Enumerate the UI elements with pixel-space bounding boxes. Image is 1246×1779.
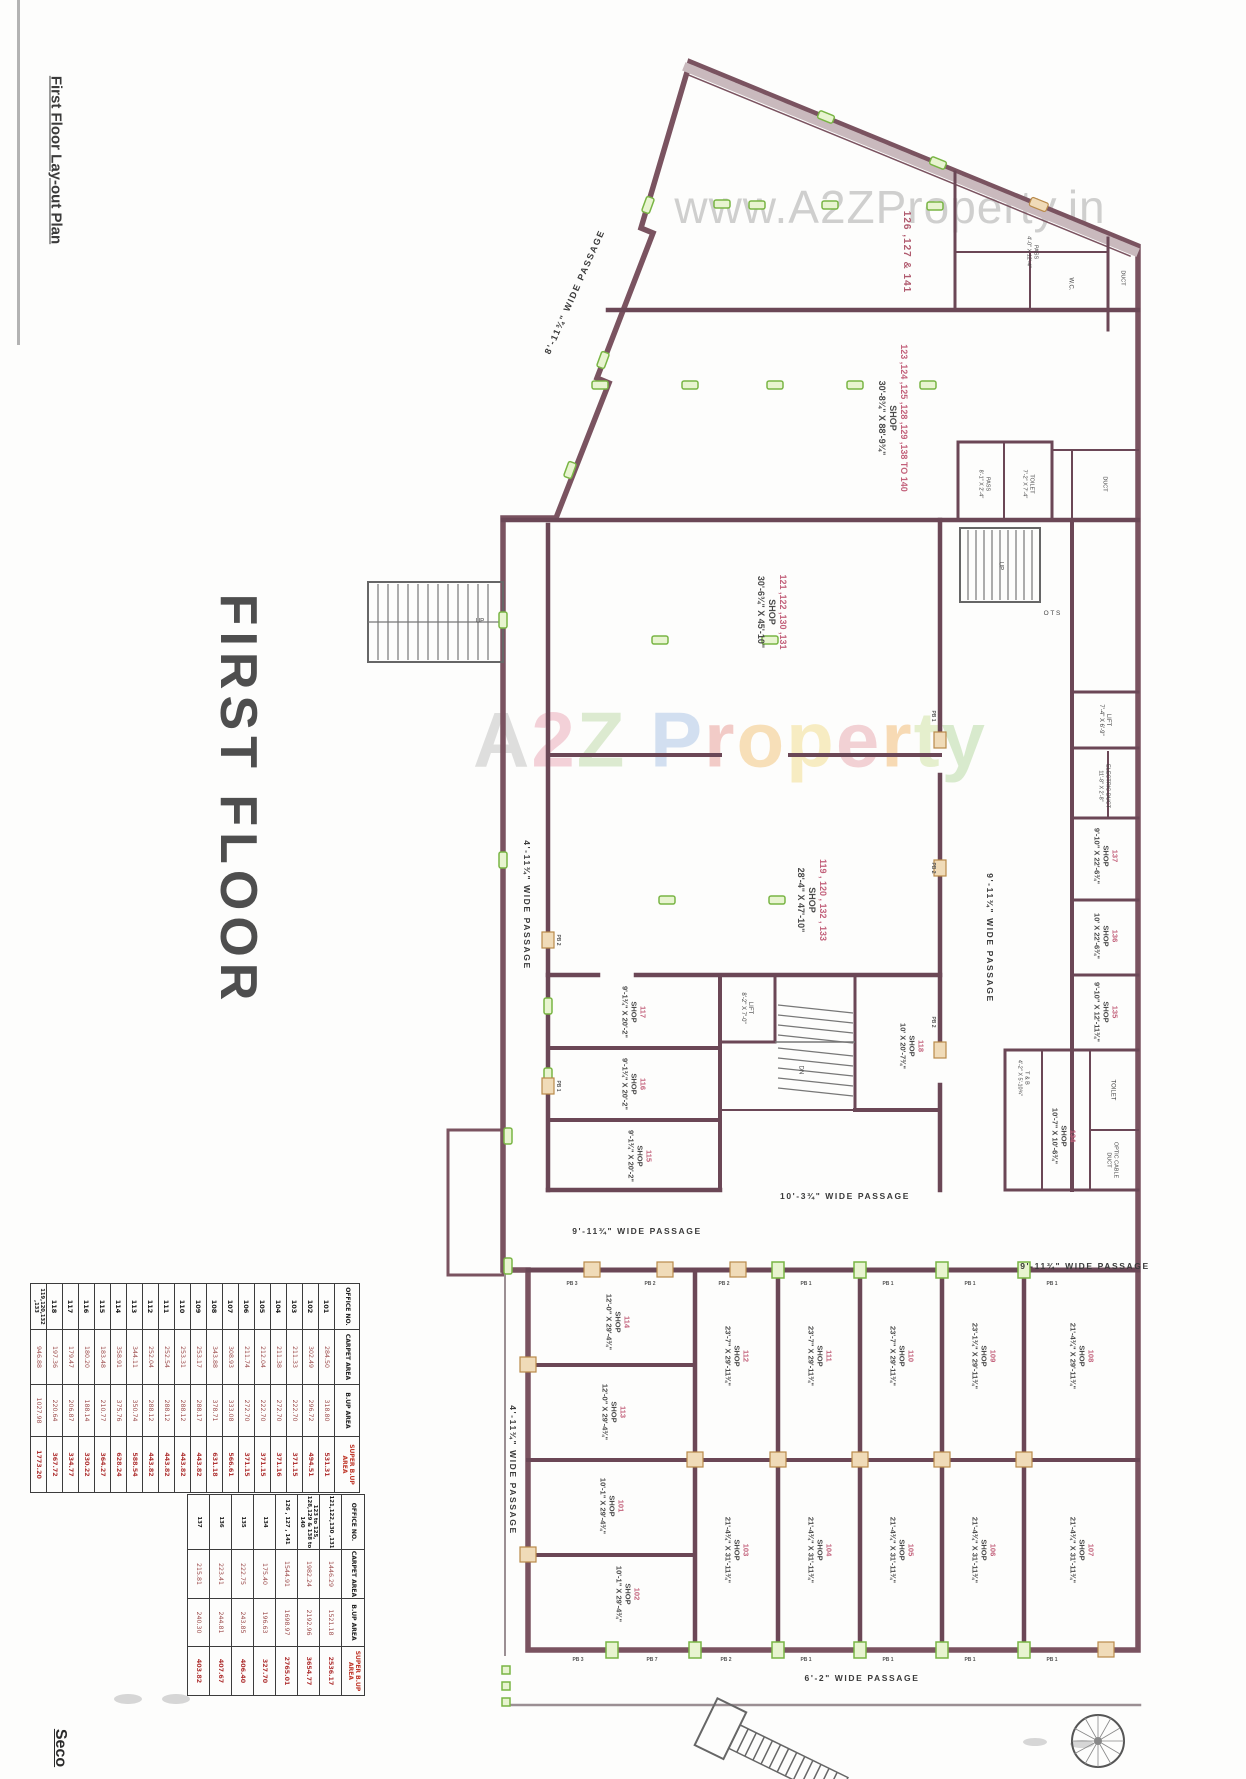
- table-cell: 371.15: [287, 1437, 303, 1493]
- passage-left-upper-label: 4'-11¾" WIDE PASSAGE: [522, 840, 532, 970]
- table-cell: 288.17: [191, 1385, 207, 1437]
- table-cell: 371.16: [271, 1437, 287, 1493]
- table-row: 115183.48210.77364.27: [95, 1284, 111, 1493]
- table-cell: 253.17: [191, 1330, 207, 1385]
- table-row: 101284.50318.80531.31: [319, 1284, 335, 1493]
- table-cell: 134: [254, 1495, 276, 1550]
- table-cell: 1544.91: [276, 1550, 298, 1599]
- passage-left-lower-label: 4'-11¾" WIDE PASSAGE: [508, 1405, 518, 1535]
- table-cell: 367.72: [47, 1437, 63, 1493]
- optic-cable-duct-label: OPTIC CABLE DUCT: [1105, 1142, 1118, 1178]
- room-106: 106 SHOP 21'-4¾" X 31'-11¾": [971, 1517, 998, 1583]
- table-cell: 175.40: [254, 1550, 276, 1599]
- table-cell: 344.11: [127, 1330, 143, 1385]
- toilet-mid-label: TOILET 7'-2" X 7'-4": [1021, 470, 1034, 499]
- table-row: 123 to 125, 128,129 & 138 to 1401982.242…: [298, 1495, 320, 1696]
- sheet-title: First Floor Lay-out Plan: [48, 76, 65, 244]
- floor-title: FIRST FLOOR: [208, 594, 268, 1007]
- table-cell: 211.38: [271, 1330, 287, 1385]
- table-cell: 102: [303, 1284, 319, 1330]
- room-103: 103 SHOP 21'-4¾" X 31'-11¾": [724, 1517, 751, 1583]
- pier-label: PB 1: [1046, 1657, 1057, 1663]
- table-cell: 946.88: [31, 1330, 47, 1385]
- electric-duct-label: ELECTRIC DUCT 11'-8" X 2'-8": [1097, 764, 1110, 808]
- table-row: 114358.91375.76628.24: [111, 1284, 127, 1493]
- table-cell: 252.54: [159, 1330, 175, 1385]
- column-header: OFFICE NO.: [335, 1284, 360, 1330]
- table-row: 137215.81240.30403.82: [188, 1495, 210, 1696]
- table-cell: 112: [143, 1284, 159, 1330]
- area-table-second-grid: OFFICE NO.CARPET AREAB.UP AREASUPER B.UP…: [187, 1494, 365, 1696]
- passage-mid-vertical-label: 9'-11¾" WIDE PASSAGE: [985, 873, 995, 1003]
- pier-label: PB 2: [718, 1281, 729, 1287]
- table-cell: 179.47: [63, 1330, 79, 1385]
- table-cell: 1773.20: [31, 1437, 47, 1493]
- table-cell: 272.70: [271, 1385, 287, 1437]
- table-cell: 222.75: [232, 1550, 254, 1599]
- table-cell: 104: [271, 1284, 287, 1330]
- table-cell: 371.15: [239, 1437, 255, 1493]
- table-cell: 334.77: [63, 1437, 79, 1493]
- table-row: 105212.04222.70371.15: [255, 1284, 271, 1493]
- table-cell: 136: [210, 1495, 232, 1550]
- column-header: B.UP AREA: [342, 1599, 365, 1647]
- floor-plan-sheet: www.A2ZProperty.in A2Z Property: [0, 0, 1246, 1779]
- table-row: 118197.36220.64367.72: [47, 1284, 63, 1493]
- duct-mid-label: DUCT: [1101, 476, 1108, 491]
- column-header: CARPET AREA: [335, 1330, 360, 1385]
- room-110: 110 SHOP 23'-7" X 29'-11¾": [889, 1326, 916, 1386]
- pier-label: PB 1: [800, 1281, 811, 1287]
- pass-mid-label: PASS 8'-1" X 2'-4": [977, 470, 990, 499]
- table-cell: 333.08: [223, 1385, 239, 1437]
- table-cell: 2765.01: [276, 1647, 298, 1696]
- room-109: 109 SHOP 23'-1¾" X 29'-11¾": [971, 1323, 998, 1389]
- wc-top-label: W.C.: [1066, 278, 1073, 291]
- pier-label: PB 2: [555, 934, 561, 945]
- table-cell: 211.74: [239, 1330, 255, 1385]
- pier-label: PB 1: [882, 1281, 893, 1287]
- table-cell: 330.22: [79, 1437, 95, 1493]
- table-cell: 288.12: [143, 1385, 159, 1437]
- table-row: 121,122,130 ,1311446.291521.182536.17: [320, 1495, 342, 1696]
- table-cell: 106: [239, 1284, 255, 1330]
- table-row: 135222.75243.85406.40: [232, 1495, 254, 1696]
- table-row: 112252.04288.12443.82: [143, 1284, 159, 1493]
- table-cell: 588.54: [127, 1437, 143, 1493]
- table-cell: 137: [188, 1495, 210, 1550]
- table-cell: 116: [79, 1284, 95, 1330]
- room-102: 102 SHOP 10'-1" X 29'-4¾": [615, 1566, 642, 1622]
- room-116: 116 SHOP 9'-1¾" X 20'-2": [621, 1058, 648, 1110]
- table-cell: 110: [175, 1284, 191, 1330]
- table-cell: 318.80: [319, 1385, 335, 1437]
- table-cell: 135: [232, 1495, 254, 1550]
- table-cell: 1521.18: [320, 1599, 342, 1647]
- table-row: 104211.38272.70371.16: [271, 1284, 287, 1493]
- room-108: 108 SHOP 21'-4¾" X 29'-11¾": [1069, 1323, 1096, 1389]
- table-cell: 1982.24: [298, 1550, 320, 1599]
- table-cell: 183.48: [95, 1330, 111, 1385]
- room-121-122-130-131: 121 ,122 ,130 ,131 SHOP 30'-6¾" X 45'-10…: [756, 574, 788, 649]
- dn-stair-mid-label: DN: [796, 1066, 803, 1075]
- table-cell: 443.82: [143, 1437, 159, 1493]
- table-row: 117179.47206.87334.77: [63, 1284, 79, 1493]
- table-cell: 222.70: [255, 1385, 271, 1437]
- table-cell: 494.51: [303, 1437, 319, 1493]
- table-cell: 302.49: [303, 1330, 319, 1385]
- table-cell: 1446.29: [320, 1550, 342, 1599]
- table-row: 113344.11350.74588.54: [127, 1284, 143, 1493]
- table-cell: 197.36: [47, 1330, 63, 1385]
- pier-label: PB 2: [930, 1016, 936, 1027]
- table-row: 103211.33222.70371.15: [287, 1284, 303, 1493]
- table-cell: 288.12: [159, 1385, 175, 1437]
- table-cell: 288.12: [175, 1385, 191, 1437]
- table-cell: 243.85: [232, 1599, 254, 1647]
- table-cell: 566.61: [223, 1437, 239, 1493]
- lift-mid-label: LIFT 8'-2" X 7'-0": [739, 992, 753, 1023]
- table-row: 119,120,132 ,133946.881027.981773.20: [31, 1284, 47, 1493]
- table-cell: 188.14: [79, 1385, 95, 1437]
- table-cell: 244.81: [210, 1599, 232, 1647]
- table-row: 116180.20188.14330.22: [79, 1284, 95, 1493]
- area-table-first-grid: OFFICE NO.CARPET AREAB.UP AREASUPER B.UP…: [30, 1283, 360, 1493]
- table-cell: 327.70: [254, 1647, 276, 1696]
- table-cell: 378.71: [207, 1385, 223, 1437]
- pier-label: PB 1: [1046, 1281, 1057, 1287]
- room-123-to-140: 123 ,124 ,125 ,128 ,129 ,138 TO 140 SHOP…: [877, 344, 909, 491]
- table-cell: 252.04: [143, 1330, 159, 1385]
- table-cell: 109: [191, 1284, 207, 1330]
- room-107: 107 SHOP 21'-4¾" X 31'-11¾": [1069, 1517, 1096, 1583]
- table-cell: 407.67: [210, 1647, 232, 1696]
- table-cell: 105: [255, 1284, 271, 1330]
- room-101: 101 SHOP 10'-1" X 29'-4¾": [599, 1478, 626, 1534]
- table-cell: 403.82: [188, 1647, 210, 1696]
- table-cell: 350.74: [127, 1385, 143, 1437]
- pier-label: PB 2: [644, 1281, 655, 1287]
- table-cell: 2192.96: [298, 1599, 320, 1647]
- table-cell: 1027.98: [31, 1385, 47, 1437]
- table-cell: 180.20: [79, 1330, 95, 1385]
- room-114: 114 SHOP 12'-0" X 29'-4¾": [605, 1294, 632, 1350]
- table-cell: 296.72: [303, 1385, 319, 1437]
- table-cell: 121,122,130 ,131: [320, 1495, 342, 1550]
- table-cell: 211.33: [287, 1330, 303, 1385]
- table-cell: 114: [111, 1284, 127, 1330]
- table-cell: 210.77: [95, 1385, 111, 1437]
- table-cell: 284.50: [319, 1330, 335, 1385]
- table-cell: 443.82: [159, 1437, 175, 1493]
- duct-top-label: DUCT: [1119, 270, 1126, 285]
- table-cell: 215.81: [188, 1550, 210, 1599]
- up-stair-right-label: UP: [996, 562, 1003, 570]
- table-cell: 1698.97: [276, 1599, 298, 1647]
- table-cell: 2536.17: [320, 1647, 342, 1696]
- room-136: 136 SHOP 10' X 22'-6¾": [1093, 913, 1120, 959]
- pier-label: PB 1: [800, 1657, 811, 1663]
- table-cell: 222.70: [287, 1385, 303, 1437]
- table-cell: 117: [63, 1284, 79, 1330]
- table-cell: 531.31: [319, 1437, 335, 1493]
- table-cell: 308.93: [223, 1330, 239, 1385]
- table-cell: 628.24: [111, 1437, 127, 1493]
- table-cell: 253.31: [175, 1330, 191, 1385]
- table-cell: 126 , 127 , 141: [276, 1495, 298, 1550]
- room-117: 117 SHOP 9'-1¾" X 20'-2": [621, 986, 648, 1038]
- pier-label: PB 3: [572, 1657, 583, 1663]
- room-135: 135 SHOP 9'-10" X 12'-11¾": [1093, 982, 1120, 1042]
- table-cell: 196.63: [254, 1599, 276, 1647]
- room-115: 115 SHOP 9'-1¾" X 20'-2": [627, 1130, 654, 1182]
- ots-label: O T S: [1044, 610, 1061, 618]
- lift-right-label: LIFT 7'-4" X 6'-9": [1097, 704, 1111, 735]
- pier-label: PB 2: [720, 1657, 731, 1663]
- table-cell: 358.91: [111, 1330, 127, 1385]
- pier-label: PB 1: [930, 710, 936, 721]
- toilet-right-label: TOILET: [1108, 1080, 1115, 1101]
- room-112: 112 SHOP 23'-7" X 29'-11¾": [724, 1326, 751, 1386]
- room-118: 118 SHOP 10' X 20'-7¾": [899, 1023, 926, 1069]
- pier-label: PB 1: [964, 1281, 975, 1287]
- room-134: 134 SHOP 10'-7" X 10'-6¾": [1051, 1108, 1078, 1164]
- pier-label: PB 3: [566, 1281, 577, 1287]
- room-126-127-141: 126 ,127 & 141: [900, 211, 912, 293]
- table-cell: 107: [223, 1284, 239, 1330]
- column-header: B.UP AREA: [335, 1385, 360, 1437]
- column-header: OFFICE NO.: [342, 1495, 365, 1550]
- pier-label: PB 2: [930, 862, 936, 873]
- table-row: 111252.54288.12443.82: [159, 1284, 175, 1493]
- table-cell: 3654.77: [298, 1647, 320, 1696]
- table-cell: 443.82: [191, 1437, 207, 1493]
- room-137: 137 SHOP 9'-10" X 22'-6¾": [1093, 828, 1120, 884]
- table-cell: 272.70: [239, 1385, 255, 1437]
- area-table-second: OFFICE NO.CARPET AREAB.UP AREASUPER B.UP…: [196, 1494, 365, 1695]
- pier-label: PB 1: [555, 1080, 561, 1091]
- t-and-b-label: T & B 4'-2" X 5'-10¾": [1016, 1060, 1029, 1096]
- pier-label: PB 7: [646, 1657, 657, 1663]
- table-cell: 443.82: [175, 1437, 191, 1493]
- table-cell: 223.41: [210, 1550, 232, 1599]
- table-cell: 240.30: [188, 1599, 210, 1647]
- table-cell: 123 to 125, 128,129 & 138 to 140: [298, 1495, 320, 1550]
- area-table-second-header: OFFICE NO.CARPET AREAB.UP AREASUPER B.UP…: [342, 1495, 365, 1696]
- column-header: CARPET AREA: [342, 1550, 365, 1599]
- table-cell: 206.87: [63, 1385, 79, 1437]
- passage-h-mid-label: 10'-3¾" WIDE PASSAGE: [780, 1191, 910, 1201]
- table-cell: 108: [207, 1284, 223, 1330]
- table-cell: 364.27: [95, 1437, 111, 1493]
- pass-top-label: PASS 4'-0" X 12'-4": [1025, 236, 1038, 268]
- table-cell: 118: [47, 1284, 63, 1330]
- table-cell: 343.88: [207, 1330, 223, 1385]
- next-sheet-partial-label: Seco: [51, 1729, 69, 1767]
- room-119-120-132-133: 119 , 120 , 132 , 133 SHOP 28'-4" X 47'-…: [796, 859, 828, 941]
- table-cell: 103: [287, 1284, 303, 1330]
- table-cell: 406.40: [232, 1647, 254, 1696]
- table-cell: 631.18: [207, 1437, 223, 1493]
- table-row: 106211.74272.70371.15: [239, 1284, 255, 1493]
- room-111: 111 SHOP 23'-7" X 29'-11¾": [807, 1326, 834, 1386]
- pier-label: PB 1: [882, 1657, 893, 1663]
- area-table-first-header: OFFICE NO.CARPET AREAB.UP AREASUPER B.UP…: [335, 1284, 360, 1493]
- table-row: 134175.40196.63327.70: [254, 1495, 276, 1696]
- table-row: 110253.31288.12443.82: [175, 1284, 191, 1493]
- passage-h-left-label: 9'-11¾" WIDE PASSAGE: [572, 1226, 702, 1236]
- table-row: 107308.93333.08566.61: [223, 1284, 239, 1493]
- room-104: 104 SHOP 21'-4¾" X 31'-11¾": [807, 1517, 834, 1583]
- area-table-first: OFFICE NO.CARPET AREAB.UP AREASUPER B.UP…: [38, 1283, 360, 1492]
- table-row: 109253.17288.17443.82: [191, 1284, 207, 1493]
- table-cell: 212.04: [255, 1330, 271, 1385]
- table-cell: 111: [159, 1284, 175, 1330]
- passage-h-right-label: 9'-11¾" WIDE PASSAGE: [1020, 1261, 1150, 1271]
- table-row: 126 , 127 , 1411544.911698.972765.01: [276, 1495, 298, 1696]
- table-cell: 115: [95, 1284, 111, 1330]
- table-cell: 101: [319, 1284, 335, 1330]
- room-113: 113 SHOP 12'-0" X 29'-4¾": [601, 1384, 628, 1440]
- table-cell: 113: [127, 1284, 143, 1330]
- table-row: 136223.41244.81407.67: [210, 1495, 232, 1696]
- room-105: 105 SHOP 21'-4¾" X 31'-11¾": [889, 1517, 916, 1583]
- table-cell: 119,120,132 ,133: [31, 1284, 47, 1330]
- table-cell: 220.64: [47, 1385, 63, 1437]
- table-cell: 371.15: [255, 1437, 271, 1493]
- pier-label: PB 1: [964, 1657, 975, 1663]
- column-header: SUPER B.UP AREA: [335, 1437, 360, 1493]
- column-header: SUPER B.UP AREA: [342, 1647, 365, 1696]
- up-stair-left-label: UP: [476, 618, 484, 625]
- table-row: 108343.88378.71631.18: [207, 1284, 223, 1493]
- table-row: 102302.49296.72494.51: [303, 1284, 319, 1493]
- table-cell: 375.76: [111, 1385, 127, 1437]
- passage-h-bottom-label: 6'-2" WIDE PASSAGE: [805, 1673, 920, 1683]
